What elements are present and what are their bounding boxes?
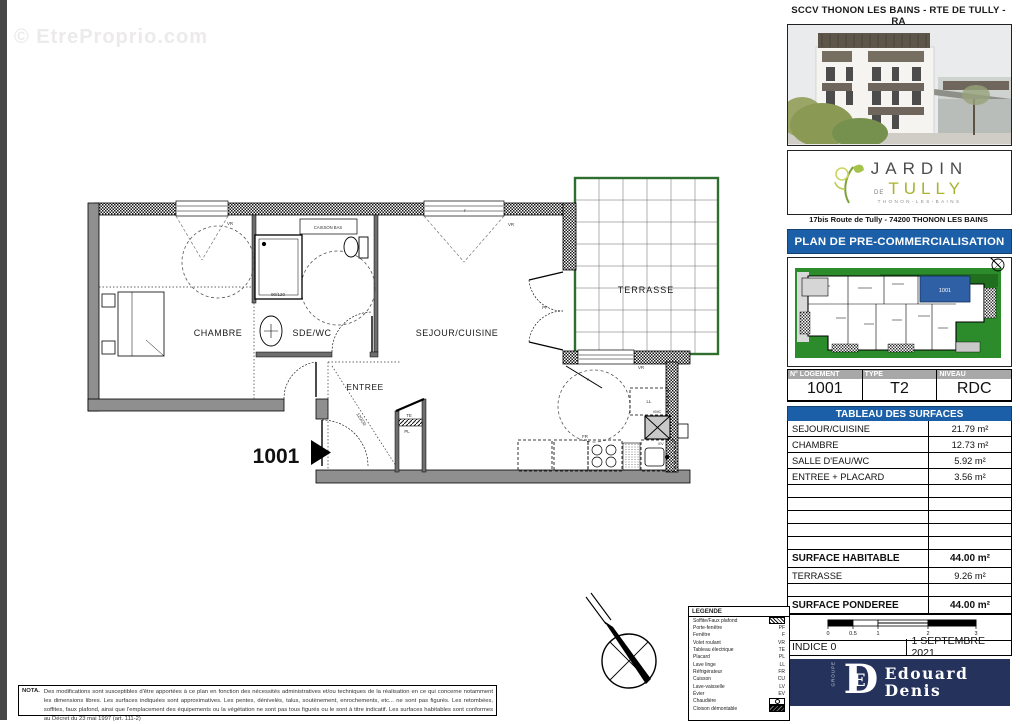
developer-name: Edouard Denis (885, 666, 969, 699)
unit-table-values: 1001 T2 RDC (788, 379, 1011, 400)
legend-item-label: Cuisson (693, 676, 711, 682)
legend: LEGENDE Soffite/Faux plafondPorte-fenêtr… (688, 606, 790, 721)
logo-subtitle: THONON-LES-BAINS (878, 200, 962, 205)
legend-item: Tableau électriqueTE (689, 646, 789, 653)
logo-tully: TULLY (888, 180, 965, 197)
surface-row-label: TERRASSE (788, 568, 929, 583)
surface-row: CHAMBRE12.73 m² (788, 437, 1011, 453)
surface-row-value: 5.92 m² (929, 456, 1011, 466)
unit-number-callout: 1001 (253, 440, 331, 468)
svg-text:0: 0 (826, 631, 829, 637)
unit-col-type: TYPE (863, 370, 938, 379)
unit-table: N° LOGEMENT TYPE NIVEAU 1001 T2 RDC (787, 369, 1012, 402)
developer-monogram: D E (844, 662, 878, 704)
legend-item: PlacardPL (689, 654, 789, 661)
unit-value-logement: 1001 (788, 379, 863, 400)
surface-row-value: 3.56 m² (929, 472, 1011, 482)
surface-row-value: 44.00 m² (929, 600, 1011, 611)
legend-swatch-boiler (769, 698, 785, 705)
legend-item: Lave-vaisselleLV (689, 683, 789, 690)
legend-item-label: Soffite/Faux plafond (693, 618, 737, 624)
siteplan-unit-label: 1001 (939, 288, 951, 294)
developer-logo: GROUPE D E Edouard Denis (787, 659, 1010, 706)
legend-item-abbr: F (782, 632, 785, 638)
revision-indice: INDICE 0 (788, 639, 907, 655)
logo-box: JARDIN DE TULLY THONON-LES-BAINS (787, 150, 1012, 215)
surface-row (788, 498, 1011, 511)
unit-table-header: N° LOGEMENT TYPE NIVEAU (788, 370, 1011, 379)
closet-wall (396, 399, 424, 411)
surface-row: SALLE D'EAU/WC5.92 m² (788, 453, 1011, 469)
legend-item: FenêtreF (689, 632, 789, 639)
compass-icon (586, 593, 656, 688)
legend-item-abbr: VR (778, 640, 785, 646)
surface-row-value: 21.79 m² (929, 424, 1011, 434)
surface-row-value: 12.73 m² (929, 440, 1011, 450)
legend-item: CuissonCU (689, 676, 789, 683)
unit-col-niveau: NIVEAU (937, 370, 1011, 379)
terrasse-label: TERRASSE (618, 285, 675, 295)
logo-text: JARDIN DE TULLY THONON-LES-BAINS (871, 160, 968, 205)
revision-row: INDICE 0 1 SEPTEMBRE 2021 (787, 639, 1012, 656)
svg-text:VMC: VMC (653, 410, 662, 414)
surface-row-value: 9.26 m² (929, 571, 1011, 581)
svg-text:PL: PL (404, 429, 410, 434)
legend-item-abbr: CU (778, 676, 785, 682)
svg-text:EV: EV (658, 441, 664, 446)
legend-item-abbr: FR (778, 669, 785, 675)
surface-table: SEJOUR/CUISINE21.79 m²CHAMBRE12.73 m²SAL… (787, 421, 1012, 615)
legend-item: ÉvierEV (689, 690, 789, 697)
room-label-entree: ENTREE (346, 382, 383, 392)
surface-row-label: SURFACE HABITABLE (788, 550, 929, 567)
legend-rows: Soffite/Faux plafondPorte-fenêtrePFFenêt… (689, 617, 789, 712)
closet-hatch (399, 419, 422, 426)
surface-row-label: CHAMBRE (788, 437, 929, 452)
legend-item-label: Tableau électrique (693, 647, 734, 653)
svg-text:1: 1 (876, 631, 879, 637)
doors (284, 272, 602, 466)
address-line: 17bis Route de Tully - 74200 THONON LES … (787, 215, 1010, 224)
svg-text:LL: LL (647, 399, 652, 404)
svg-text:90/120: 90/120 (271, 292, 285, 297)
surface-row (788, 584, 1011, 597)
nota-label: NOTA. (22, 688, 40, 713)
surface-row (788, 511, 1011, 524)
surface-row-label (788, 524, 929, 536)
legend-item-label: Volet roulant (693, 640, 721, 646)
legend-swatch-hatch (769, 617, 785, 624)
surface-row-label: ENTREE + PLACARD (788, 469, 929, 484)
legend-item: Chaudière (689, 698, 789, 705)
legend-title: LEGENDE (689, 607, 789, 617)
bed (102, 292, 164, 356)
terrasse-area: TERRASSE (575, 178, 718, 354)
surface-row (788, 485, 1011, 498)
legend-item: Porte-fenêtrePF (689, 624, 789, 631)
developer-group-label: GROUPE (830, 679, 835, 687)
legend-swatch-solid (769, 705, 785, 712)
legend-item-abbr: PF (779, 625, 785, 631)
svg-text:PF: PF (542, 305, 548, 310)
legend-item-label: Fenêtre (693, 632, 710, 638)
surface-row-label (788, 584, 929, 596)
svg-text:120/20: 120/20 (355, 412, 367, 427)
surface-row (788, 537, 1011, 550)
legend-item-abbr: LL (779, 662, 785, 668)
svg-text:0.5: 0.5 (849, 631, 857, 637)
legend-item-abbr: TE (779, 647, 785, 653)
surface-row-label (788, 511, 929, 523)
bathroom-fixtures (255, 219, 368, 346)
legend-item: Volet roulantVR (689, 639, 789, 646)
legend-item: Lave lingeLL (689, 661, 789, 668)
svg-text:VR: VR (227, 221, 233, 226)
surface-row-label: SURFACE PONDEREE (788, 597, 929, 614)
building-render (788, 25, 1011, 144)
legend-item-label: Évier (693, 691, 704, 697)
legend-item: Cloison démontable (689, 705, 789, 712)
nota: NOTA. Des modifications sont susceptible… (18, 685, 497, 716)
plan-banner: PLAN DE PRE-COMMERCIALISATION (787, 229, 1012, 254)
legend-item-label: Lave linge (693, 662, 716, 668)
surface-row-label (788, 498, 929, 510)
surface-row-label (788, 485, 929, 497)
surface-table-body: SEJOUR/CUISINE21.79 m²CHAMBRE12.73 m²SAL… (788, 421, 1011, 614)
svg-text:P: P (587, 377, 590, 382)
svg-text:TE: TE (406, 413, 412, 418)
nota-text: Des modifications sont susceptibles d'êt… (44, 688, 493, 713)
legend-item-label: Lave-vaisselle (693, 684, 725, 690)
room-label-sde: SDE/WC (293, 328, 332, 338)
surface-row: ENTREE + PLACARD3.56 m² (788, 469, 1011, 485)
building-photo (787, 24, 1012, 146)
svg-text:VR: VR (508, 222, 514, 227)
room-label-sejour: SEJOUR/CUISINE (416, 328, 499, 338)
surface-row-label: SEJOUR/CUISINE (788, 421, 929, 436)
surface-row (788, 524, 1011, 537)
unit-value-niveau: RDC (937, 379, 1011, 400)
room-labels: CHAMBRE SDE/WC SEJOUR/CUISINE ENTREE (194, 328, 499, 392)
legend-item-label: Porte-fenêtre (693, 625, 722, 631)
logo-jardin: JARDIN (871, 160, 968, 177)
room-label-chambre: CHAMBRE (194, 328, 243, 338)
legend-item-label: Cloison démontable (693, 706, 737, 712)
unit-col-logement: N° LOGEMENT (788, 370, 863, 379)
legend-item-label: Chaudière (693, 698, 716, 704)
legend-item-label: Placard (693, 654, 710, 660)
surface-table-title: TABLEAU DES SURFACES (787, 406, 1012, 422)
surface-row: TERRASSE9.26 m² (788, 568, 1011, 584)
leaf-icon (831, 161, 865, 205)
unit-number: 1001 (253, 445, 300, 468)
surface-row-value: 44.00 m² (929, 553, 1011, 564)
surface-row: SURFACE HABITABLE44.00 m² (788, 550, 1011, 568)
surface-row: SURFACE PONDEREE44.00 m² (788, 597, 1011, 614)
legend-item-abbr: PL (779, 654, 785, 660)
surface-row: SEJOUR/CUISINE21.79 m² (788, 421, 1011, 437)
floor-plan: TERRASSE (0, 0, 785, 720)
revision-date: 1 SEPTEMBRE 2021 (907, 639, 1011, 655)
svg-text:CAISSON BAS: CAISSON BAS (314, 225, 343, 230)
legend-item: RéfrigérateurFR (689, 668, 789, 675)
legend-item-abbr: EV (778, 691, 785, 697)
surface-row-label (788, 537, 929, 549)
legend-item-label: Réfrigérateur (693, 669, 722, 675)
unit-value-type: T2 (863, 379, 938, 400)
site-plan: 1001 (787, 257, 1012, 367)
surface-row-label: SALLE D'EAU/WC (788, 453, 929, 468)
svg-text:VR: VR (638, 365, 644, 370)
legend-item-abbr: LV (779, 684, 785, 690)
logo-de: DE (874, 190, 884, 196)
legend-item: Soffite/Faux plafond (689, 617, 789, 624)
svg-text:FR: FR (582, 434, 588, 439)
